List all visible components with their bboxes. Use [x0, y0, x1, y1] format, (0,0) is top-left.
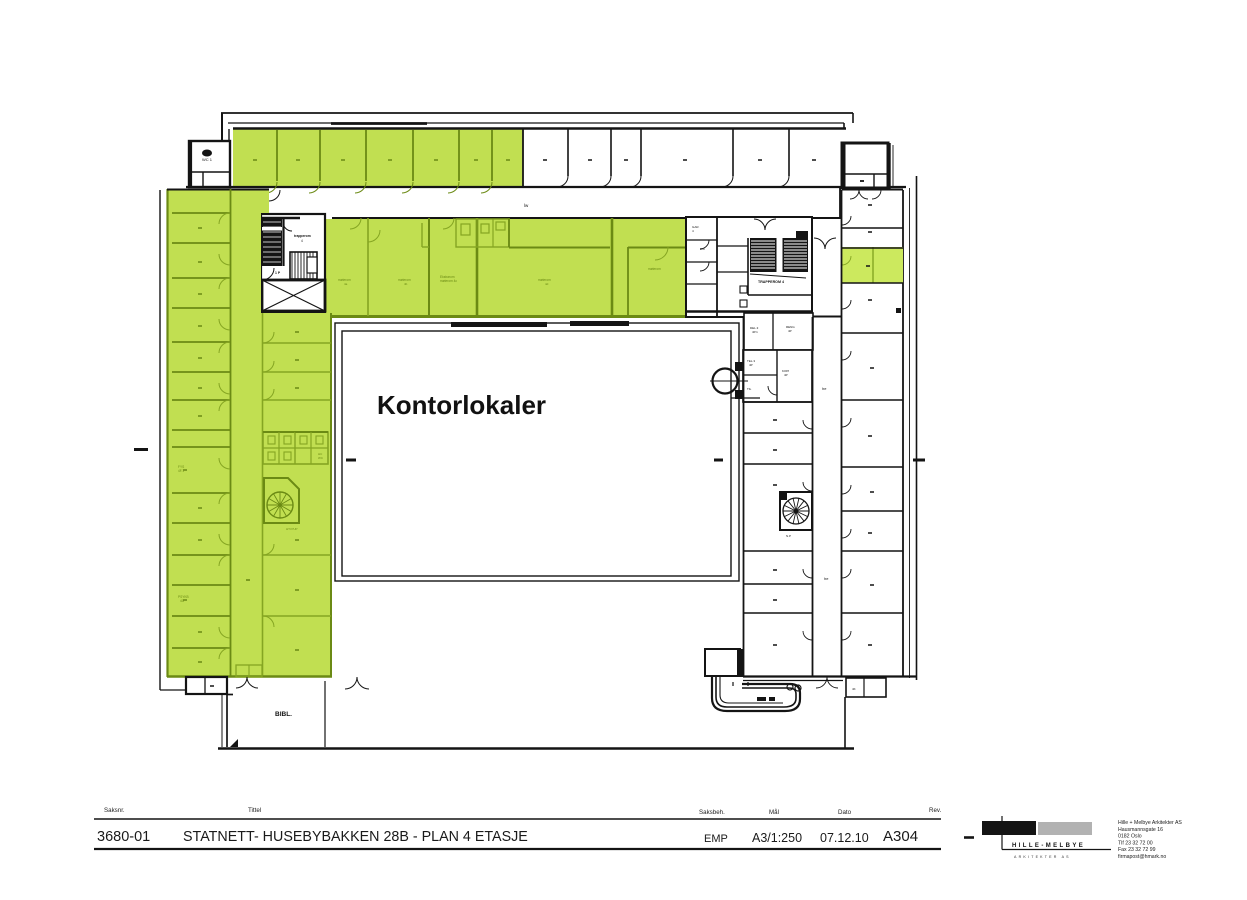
svg-text:TRAPPEROM 4: TRAPPEROM 4	[758, 280, 784, 284]
svg-text:Saksnr.: Saksnr.	[104, 807, 125, 814]
svg-text:07.12.10: 07.12.10	[820, 831, 869, 845]
svg-text:WC: WC	[318, 456, 324, 460]
svg-text:he: he	[824, 576, 829, 581]
svg-text:Hausmannsgate 16: Hausmannsgate 16	[1118, 827, 1163, 833]
svg-text:møterom: møterom	[648, 267, 661, 271]
svg-text:Hille + Melbye Arkitekter AS: Hille + Melbye Arkitekter AS	[1118, 820, 1182, 826]
svg-text:4P.1: 4P.1	[752, 330, 758, 334]
svg-text:4P: 4P	[749, 363, 753, 367]
svg-text:lw: lw	[524, 203, 529, 208]
svg-text:WC: WC	[700, 247, 706, 251]
svg-text:møterom 4c: møterom 4c	[440, 279, 457, 283]
svg-text:4: 4	[301, 239, 303, 243]
svg-text:HT.P/UP: HT.P/UP	[286, 527, 298, 531]
svg-text:trapperom: trapperom	[294, 234, 311, 238]
svg-text:ARKITEKTER AS: ARKITEKTER AS	[1014, 855, 1071, 859]
svg-text:Dato: Dato	[838, 809, 852, 816]
svg-text:Kontorlokaler: Kontorlokaler	[377, 390, 546, 420]
svg-text:N.P: N.P	[786, 534, 791, 538]
svg-text:4P: 4P	[784, 373, 788, 377]
svg-text:3680-01: 3680-01	[97, 829, 150, 845]
svg-text:A304: A304	[883, 828, 918, 845]
svg-text:Tittel: Tittel	[248, 807, 261, 814]
svg-text:0182 Oslo: 0182 Oslo	[1118, 834, 1142, 840]
svg-text:A3/1:250: A3/1:250	[752, 831, 802, 845]
svg-text:Fax 23 32 72 99: Fax 23 32 72 99	[1118, 847, 1156, 853]
svg-text:HILLE-MELBYE: HILLE-MELBYE	[1012, 843, 1085, 849]
svg-text:STATNETT- HUSEBYBAKKEN 28B - P: STATNETT- HUSEBYBAKKEN 28B - PLAN 4 ETAS…	[183, 829, 528, 845]
svg-text:WC 1: WC 1	[202, 157, 213, 162]
svg-text:4P: 4P	[788, 329, 792, 333]
svg-text:4F.1: 4F.1	[178, 469, 184, 473]
svg-text:Mål: Mål	[769, 809, 779, 816]
svg-text:Tlf 23 32 72 00: Tlf 23 32 72 00	[1118, 840, 1153, 846]
svg-text:4G: 4G	[180, 599, 185, 603]
svg-text:Rev.: Rev.	[929, 807, 942, 814]
svg-text:4a: 4a	[344, 282, 348, 286]
svg-text:4d: 4d	[545, 282, 549, 286]
svg-text:1 P: 1 P	[275, 271, 281, 275]
svg-text:Saksbeh.: Saksbeh.	[699, 809, 725, 816]
svg-text:4K: 4K	[852, 687, 856, 691]
svg-text:TIL: TIL	[747, 387, 752, 391]
svg-text:EMP: EMP	[704, 833, 728, 845]
svg-text:4b: 4b	[404, 282, 408, 286]
svg-text:he: he	[822, 386, 827, 391]
svg-text:firmapost@hmark.no: firmapost@hmark.no	[1118, 854, 1166, 860]
svg-text:BIBL.: BIBL.	[275, 711, 292, 718]
